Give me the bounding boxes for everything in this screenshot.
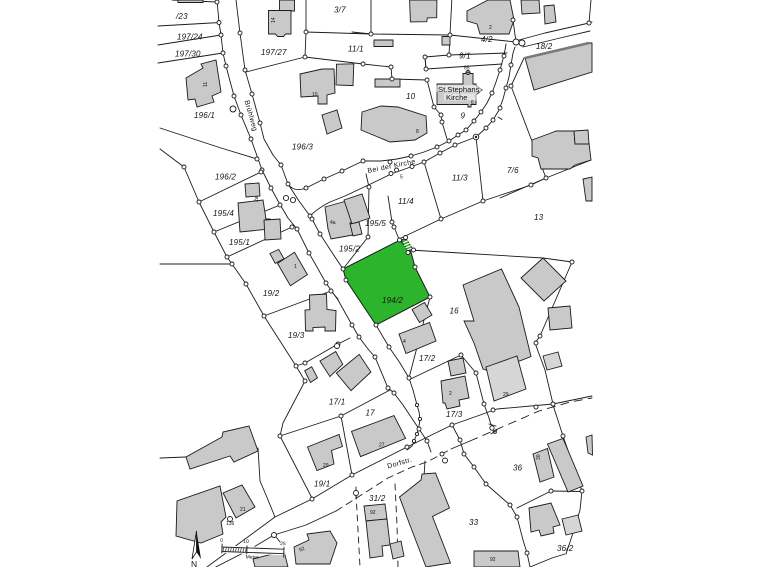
svg-text:11: 11 [203,82,209,87]
svg-text:30: 30 [536,454,542,460]
svg-text:65: 65 [464,66,470,72]
svg-text:27: 27 [379,443,385,449]
svg-text:14: 14 [271,17,277,23]
svg-text:21: 21 [240,507,246,513]
svg-text:195/5: 195/5 [365,219,386,228]
svg-text:92: 92 [370,510,376,516]
svg-text:18/2: 18/2 [536,42,553,51]
svg-text:Meter: Meter [246,554,259,560]
svg-text:9: 9 [461,112,466,121]
svg-text:2: 2 [449,391,452,397]
svg-text:4: 4 [403,339,406,345]
svg-text:25: 25 [280,541,286,547]
svg-text:19/1: 19/1 [314,480,330,489]
svg-text:31/2: 31/2 [369,494,386,503]
svg-text:19/3: 19/3 [288,331,305,340]
svg-text:10: 10 [312,92,318,98]
svg-text:11/4: 11/4 [398,197,414,206]
svg-text:19/2: 19/2 [263,289,280,298]
svg-text:11/3: 11/3 [452,174,468,183]
svg-text:5: 5 [400,175,403,181]
svg-text:/23: /23 [175,12,188,21]
svg-text:29: 29 [503,392,509,398]
svg-text:197/30: 197/30 [175,50,201,59]
svg-text:2: 2 [489,25,492,31]
svg-text:92: 92 [490,557,496,563]
svg-text:Kirche: Kirche [446,93,468,102]
svg-text:9/1: 9/1 [459,52,471,61]
svg-text:17/1: 17/1 [329,398,345,407]
svg-text:196/1: 196/1 [194,111,215,120]
svg-text:195/1: 195/1 [229,238,250,247]
svg-text:194/2: 194/2 [382,296,403,305]
svg-text:0: 0 [220,538,223,544]
svg-text:17: 17 [366,409,376,418]
svg-text:29: 29 [323,463,329,469]
svg-text:17/3: 17/3 [446,410,463,419]
svg-text:195/4: 195/4 [213,209,234,218]
svg-text:196/2: 196/2 [215,173,236,182]
svg-text:36/2: 36/2 [557,544,574,553]
svg-text:197/24: 197/24 [177,33,203,42]
svg-text:195/2: 195/2 [339,245,360,254]
svg-text:11/1: 11/1 [348,45,364,54]
svg-text:10: 10 [406,92,416,101]
svg-text:197/27: 197/27 [261,48,287,57]
svg-text:4a: 4a [330,220,336,226]
svg-text:33: 33 [469,518,479,527]
svg-text:4/2: 4/2 [481,35,493,44]
svg-text:17/2: 17/2 [419,354,436,363]
svg-text:8: 8 [416,129,419,135]
svg-text:10: 10 [243,539,249,545]
svg-text:7/6: 7/6 [507,166,519,175]
svg-text:1: 1 [294,264,297,270]
svg-text:2a: 2a [254,196,260,202]
svg-text:36: 36 [513,464,523,473]
svg-text:13: 13 [534,213,544,222]
svg-text:16: 16 [450,307,460,316]
svg-text:196/3: 196/3 [292,143,313,152]
svg-text:6: 6 [471,100,474,106]
svg-text:3/7: 3/7 [334,6,346,15]
svg-text:N: N [191,559,197,567]
